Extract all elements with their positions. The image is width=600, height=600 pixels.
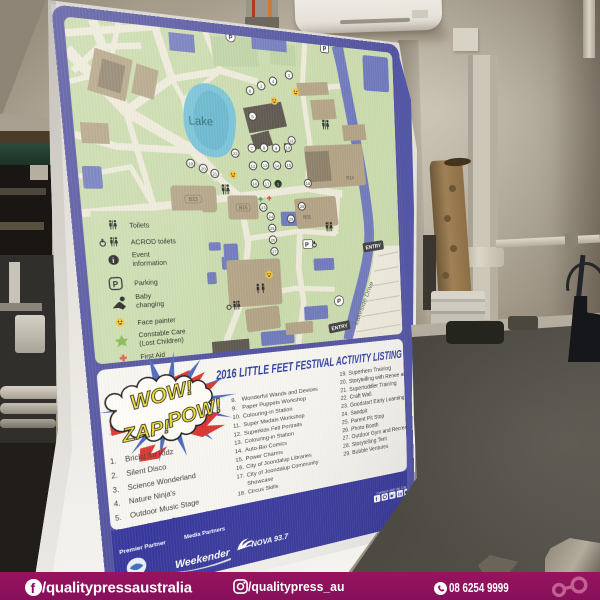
svg-text:f: f	[31, 580, 36, 596]
